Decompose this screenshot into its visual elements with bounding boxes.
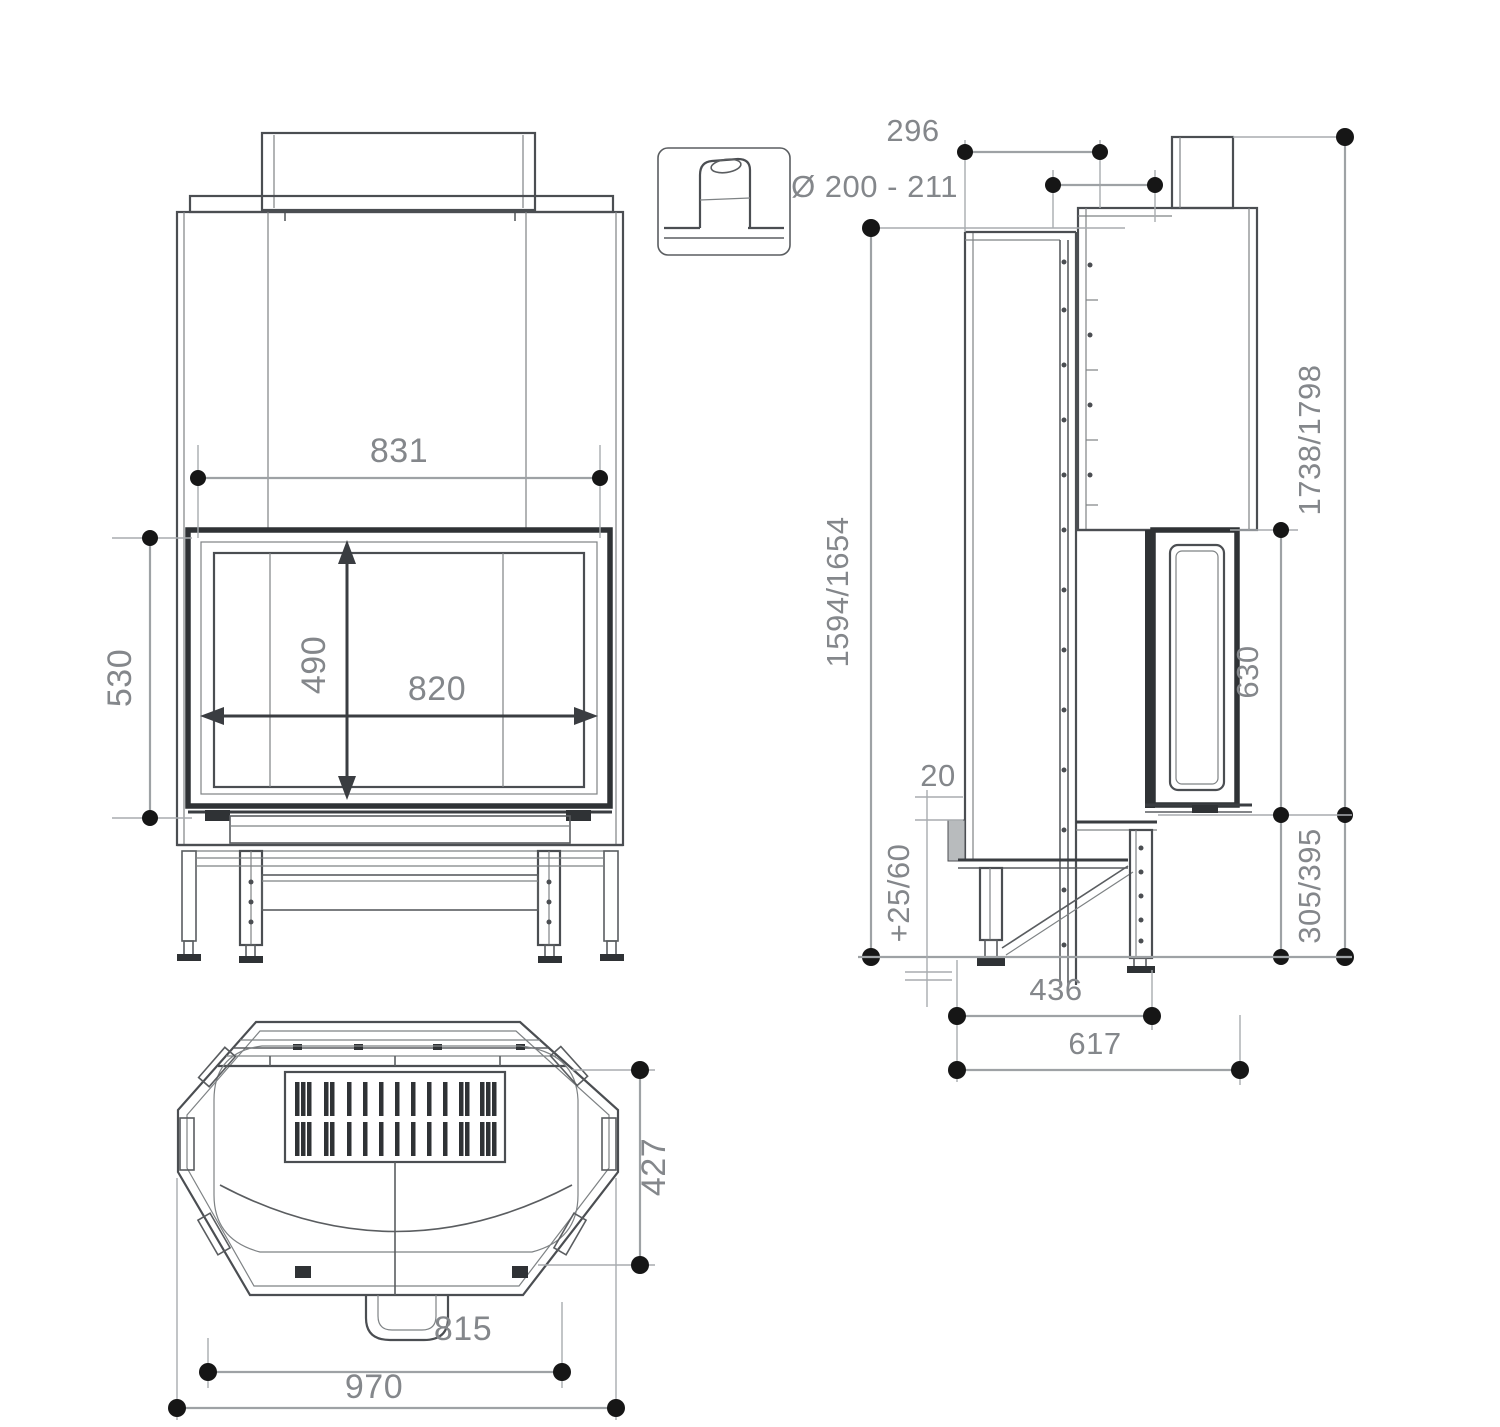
convection-grille [285,1072,505,1162]
dim-side-front-height: 1594/1654 [820,516,855,667]
dim-front-top-width: 831 [370,432,428,470]
dim-side-foot-adjustment: +25/60 [881,844,916,943]
technical-drawing: 831 530 490 820 [0,0,1500,1427]
flue-box [262,133,535,210]
plan-view: 427 815 970 [168,1022,673,1420]
dim-side-total-height: 1738/1798 [1292,364,1327,515]
side-upper-casing [1078,208,1257,530]
dim-side-flue-setback: 296 [886,113,939,148]
dim-plan-total-width: 970 [345,1368,403,1406]
side-flue-stub [1172,137,1233,208]
drawing-sheet: 831 530 490 820 [0,0,1500,1427]
dim-side-base-height: 305/395 [1292,828,1327,944]
dim-plan-front-width: 815 [434,1310,492,1348]
dim-front-opening-height: 530 [101,649,139,707]
dim-front-glass-height: 490 [295,636,333,694]
side-base [958,830,1155,973]
side-window [1076,530,1237,808]
front-view: 831 530 490 820 [101,133,624,963]
dim-plan-depth: 427 [635,1138,673,1196]
dim-side-total-depth: 617 [1068,1026,1121,1061]
door-frame [188,530,610,806]
curved-front-edge [220,1185,572,1232]
dim-side-flue-diameter: Ø 200 - 211 [791,169,958,204]
dim-side-glass-height: 630 [1230,645,1265,698]
dim-side-hearth-lip: 20 [920,758,955,793]
flue-collar-profile [700,159,750,228]
front-legs [177,851,624,963]
ash-drawer [230,816,570,843]
dim-front-glass-width: 820 [408,670,466,708]
hearth-lip [948,820,965,861]
dim-side-foot-depth: 436 [1029,972,1082,1007]
flue-collar-detail [658,148,790,255]
side-door-track [1060,232,1076,985]
side-view: 296 Ø 200 - 211 1594/1654 1738/1798 630 … [791,113,1354,1085]
